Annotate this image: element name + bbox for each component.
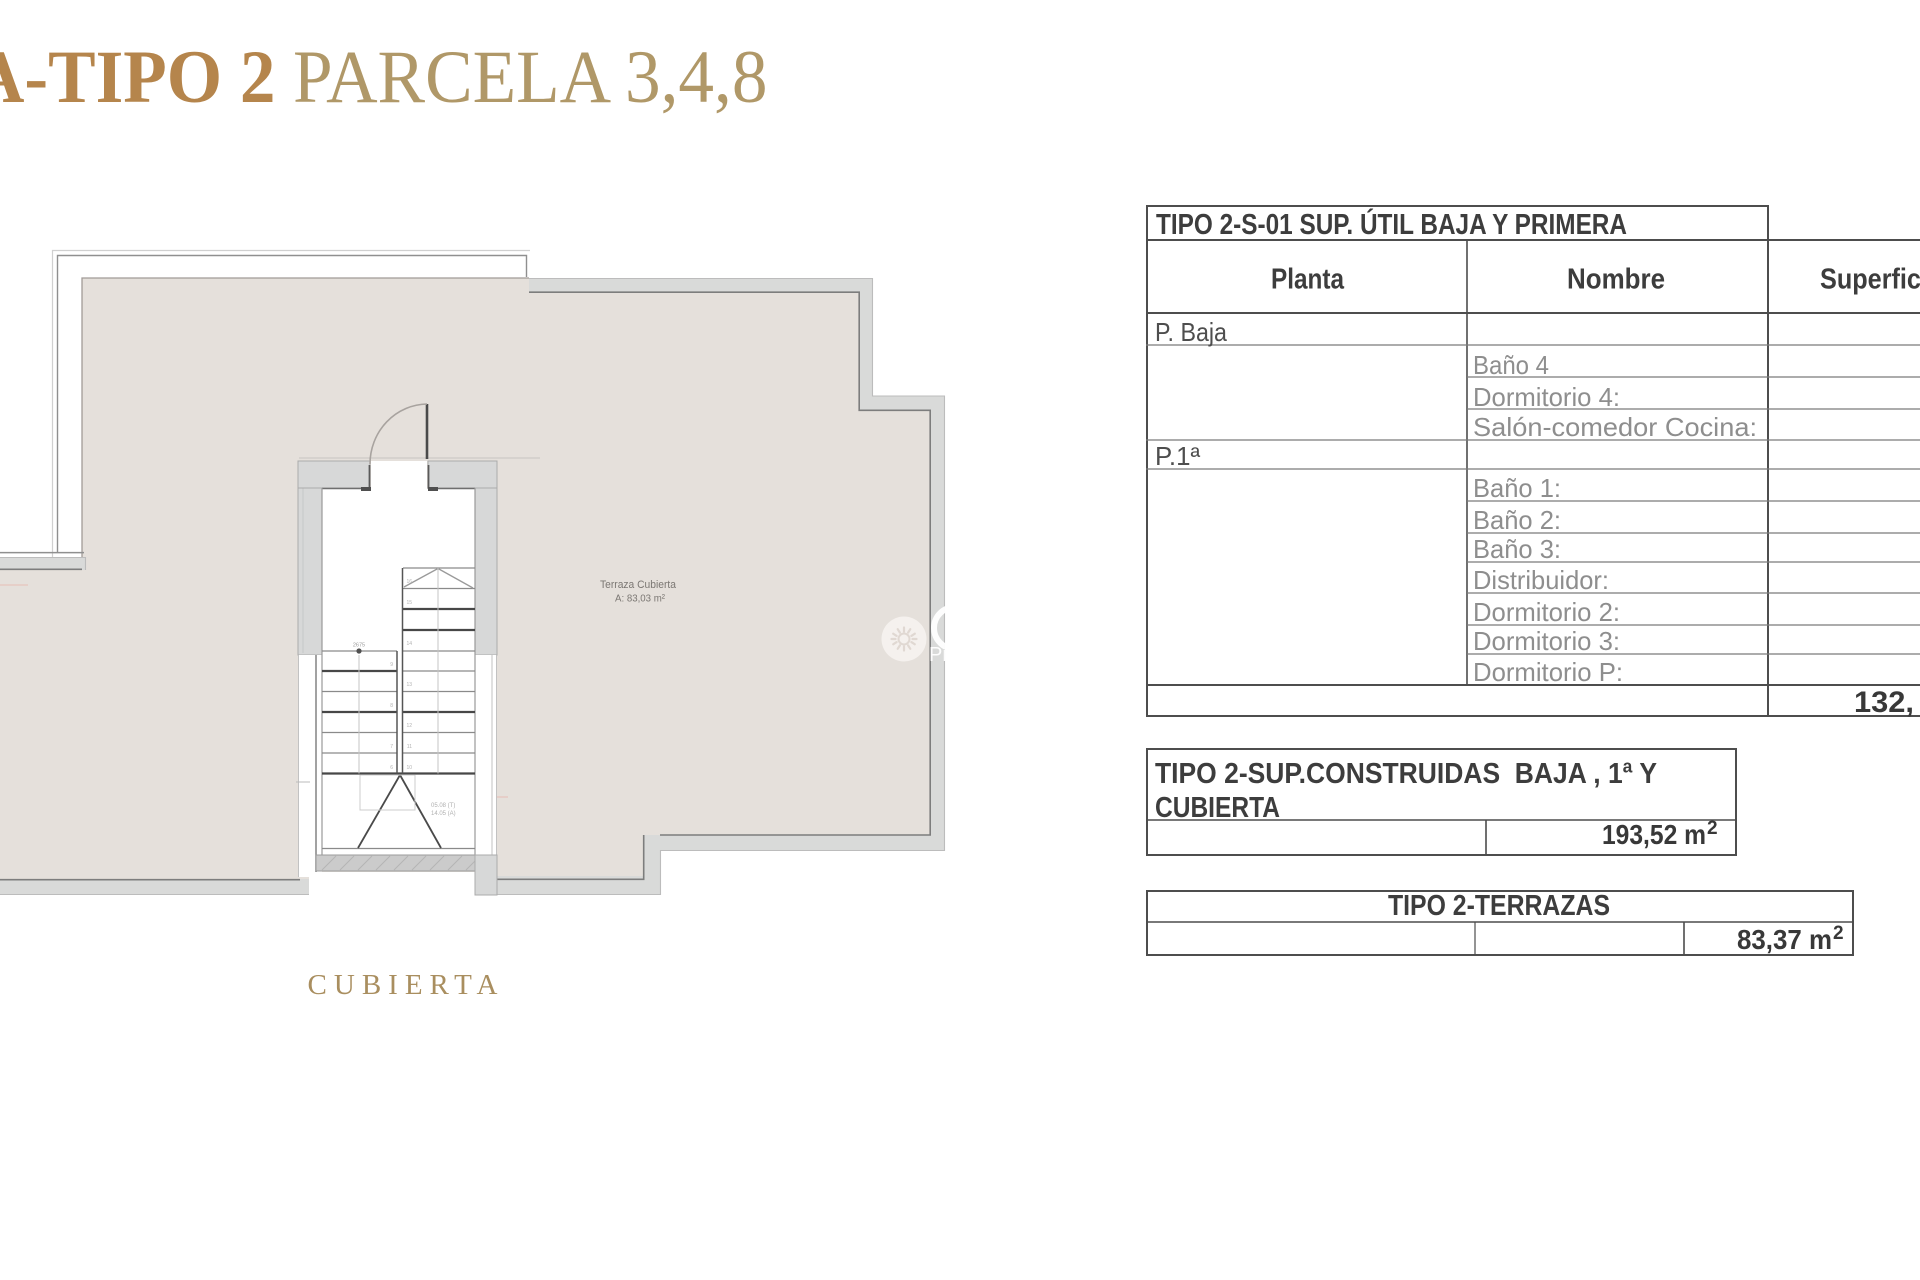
svg-text:132,: 132, bbox=[1854, 686, 1914, 719]
svg-text:Baño 4: Baño 4 bbox=[1473, 350, 1549, 380]
svg-text:193,52 m: 193,52 m bbox=[1602, 819, 1706, 850]
svg-text:83,37 m: 83,37 m bbox=[1737, 924, 1832, 955]
svg-text:P.1ª: P.1ª bbox=[1155, 441, 1200, 471]
svg-text:11: 11 bbox=[407, 744, 412, 750]
svg-text:Baño 2:: Baño 2: bbox=[1473, 505, 1561, 535]
svg-text:13: 13 bbox=[406, 682, 412, 688]
svg-text:12: 12 bbox=[406, 723, 412, 729]
svg-text:2: 2 bbox=[1707, 818, 1718, 839]
svg-text:Nombre: Nombre bbox=[1567, 264, 1665, 296]
svg-text:10: 10 bbox=[406, 765, 412, 771]
svg-text:2675: 2675 bbox=[353, 643, 365, 649]
svg-text:14: 14 bbox=[406, 641, 412, 647]
svg-text:2: 2 bbox=[1833, 923, 1844, 944]
svg-text:7: 7 bbox=[390, 744, 393, 750]
svg-text:TIPO 2-TERRAZAS: TIPO 2-TERRAZAS bbox=[1388, 890, 1610, 922]
svg-text:Terraza Cubierta: Terraza Cubierta bbox=[600, 579, 677, 591]
svg-text:8: 8 bbox=[390, 703, 393, 709]
svg-text:Pr: Pr bbox=[929, 644, 949, 666]
svg-text:P. Baja: P. Baja bbox=[1155, 317, 1227, 347]
svg-text:Dormitorio 3:: Dormitorio 3: bbox=[1473, 626, 1620, 656]
svg-text:Planta: Planta bbox=[1271, 264, 1345, 296]
svg-text:Dormitorio 4:: Dormitorio 4: bbox=[1473, 382, 1620, 412]
svg-text:Distribuidor:: Distribuidor: bbox=[1473, 565, 1609, 595]
svg-text:CUBIERTA: CUBIERTA bbox=[1155, 792, 1280, 824]
svg-text:15: 15 bbox=[406, 600, 412, 606]
svg-text:Salón-comedor Cocina:: Salón-comedor Cocina: bbox=[1473, 412, 1757, 442]
svg-text:Baño 3:: Baño 3: bbox=[1473, 534, 1561, 564]
svg-text:Dormitorio 2:: Dormitorio 2: bbox=[1473, 597, 1620, 627]
svg-text:16: 16 bbox=[406, 579, 412, 585]
svg-text:Superficie: Superficie bbox=[1820, 264, 1920, 296]
svg-text:Baño 1:: Baño 1: bbox=[1473, 473, 1561, 503]
svg-text:05.08 (T): 05.08 (T) bbox=[431, 803, 455, 809]
svg-text:6: 6 bbox=[390, 765, 393, 771]
svg-text:9: 9 bbox=[390, 662, 393, 668]
svg-text:TIPO 2-S-01 SUP. ÚTIL BAJA Y P: TIPO 2-S-01 SUP. ÚTIL BAJA Y PRIMERA bbox=[1156, 207, 1627, 241]
svg-text:A: 83,03 m²: A: 83,03 m² bbox=[615, 594, 666, 605]
svg-text:14.05 (A): 14.05 (A) bbox=[431, 811, 456, 817]
svg-text:Dormitorio P:: Dormitorio P: bbox=[1473, 657, 1623, 687]
svg-text:TIPO 2-SUP.CONSTRUIDAS BAJA ,: TIPO 2-SUP.CONSTRUIDAS BAJA , 1ª Y bbox=[1155, 758, 1657, 790]
